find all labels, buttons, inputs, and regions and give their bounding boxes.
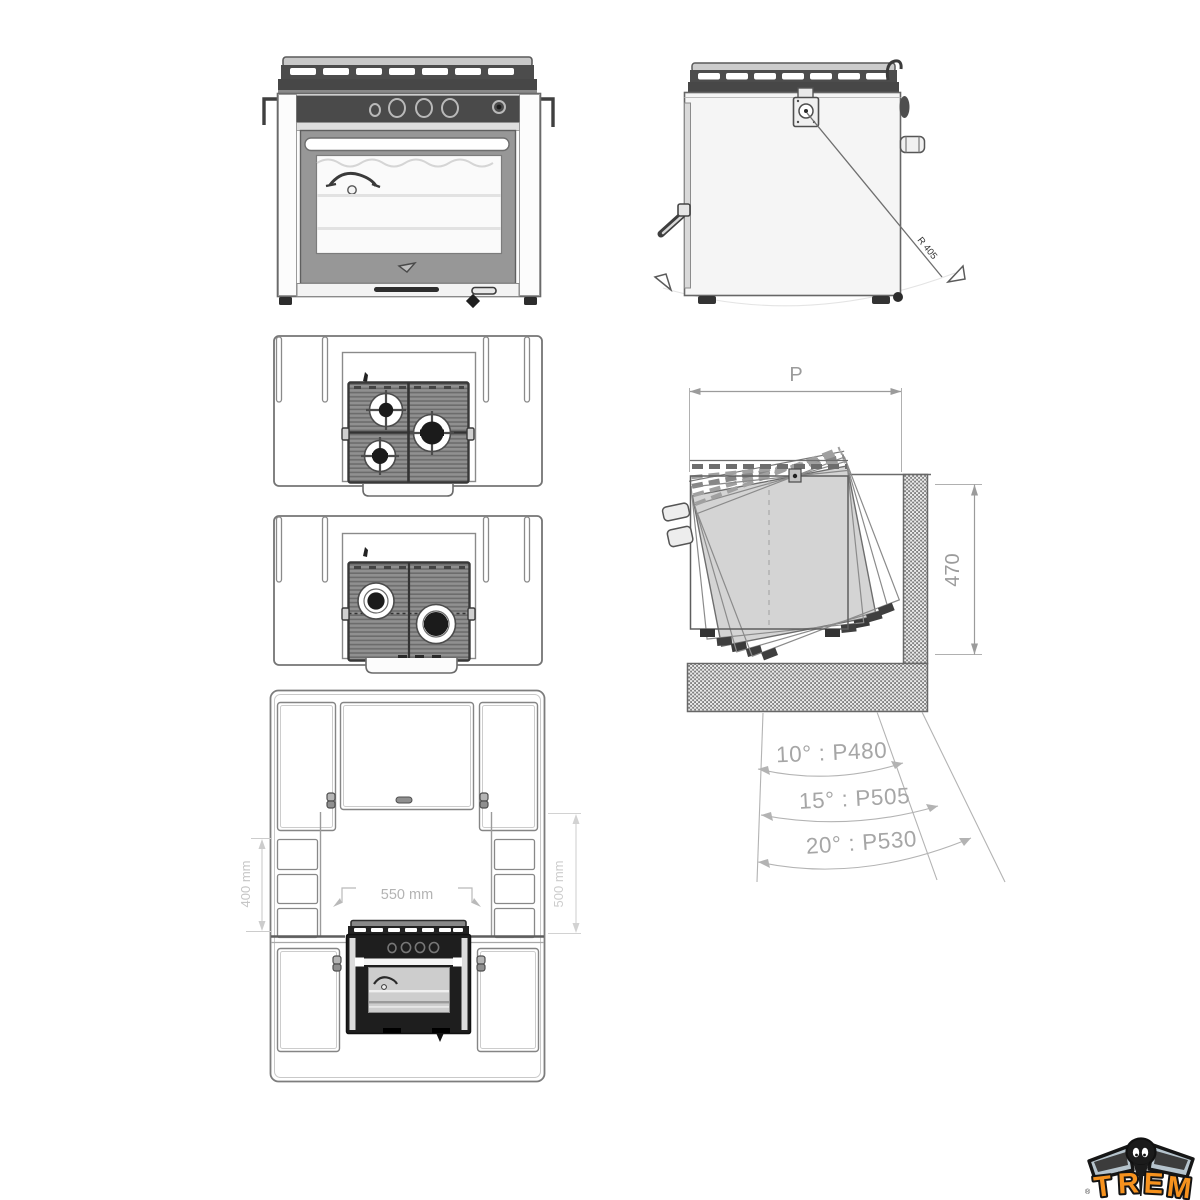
svg-text:P: P <box>789 364 802 386</box>
svg-text:R: R <box>1117 1167 1140 1200</box>
svg-text:470: 470 <box>942 553 964 586</box>
svg-text:500 mm: 500 mm <box>551 861 566 908</box>
svg-text:M: M <box>1165 1171 1193 1200</box>
svg-text:E: E <box>1143 1168 1164 1200</box>
svg-text:10° : P480: 10° : P480 <box>776 738 888 768</box>
svg-text:®: ® <box>1085 1188 1091 1196</box>
svg-text:550 mm: 550 mm <box>381 887 433 903</box>
svg-text:400 mm: 400 mm <box>238 861 253 908</box>
